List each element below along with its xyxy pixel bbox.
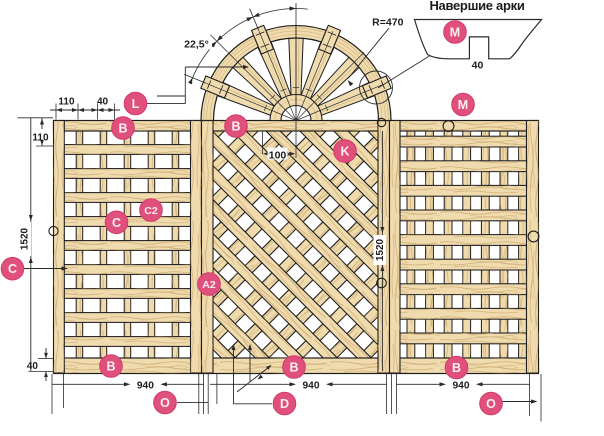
svg-text:40: 40 bbox=[27, 361, 39, 372]
svg-text:L: L bbox=[132, 97, 140, 111]
svg-text:M: M bbox=[458, 98, 468, 112]
svg-text:40: 40 bbox=[97, 97, 109, 108]
svg-text:940: 940 bbox=[453, 381, 470, 392]
svg-text:110: 110 bbox=[58, 97, 75, 108]
svg-text:B: B bbox=[231, 120, 240, 134]
svg-text:B: B bbox=[289, 361, 298, 375]
svg-text:B: B bbox=[106, 360, 115, 374]
svg-text:D: D bbox=[280, 397, 289, 411]
svg-text:O: O bbox=[160, 396, 170, 410]
svg-text:B: B bbox=[452, 361, 461, 375]
svg-text:22,5°: 22,5° bbox=[184, 39, 209, 51]
svg-text:R=470: R=470 bbox=[372, 17, 403, 29]
svg-text:1520: 1520 bbox=[20, 227, 31, 250]
svg-text:O: O bbox=[486, 397, 496, 411]
svg-text:940: 940 bbox=[137, 381, 154, 392]
svg-text:100: 100 bbox=[269, 149, 287, 161]
svg-text:Навершие арки: Навершие арки bbox=[429, 0, 524, 13]
svg-text:940: 940 bbox=[303, 381, 320, 392]
svg-text:C2: C2 bbox=[144, 205, 158, 217]
svg-text:1520: 1520 bbox=[375, 238, 386, 261]
svg-text:K: K bbox=[340, 145, 349, 159]
svg-text:110: 110 bbox=[32, 133, 49, 144]
svg-text:40: 40 bbox=[472, 60, 484, 72]
svg-text:A2: A2 bbox=[202, 279, 216, 291]
svg-text:C: C bbox=[112, 216, 121, 230]
svg-text:C: C bbox=[8, 262, 17, 276]
svg-text:M: M bbox=[450, 26, 460, 40]
svg-text:B: B bbox=[118, 122, 127, 136]
